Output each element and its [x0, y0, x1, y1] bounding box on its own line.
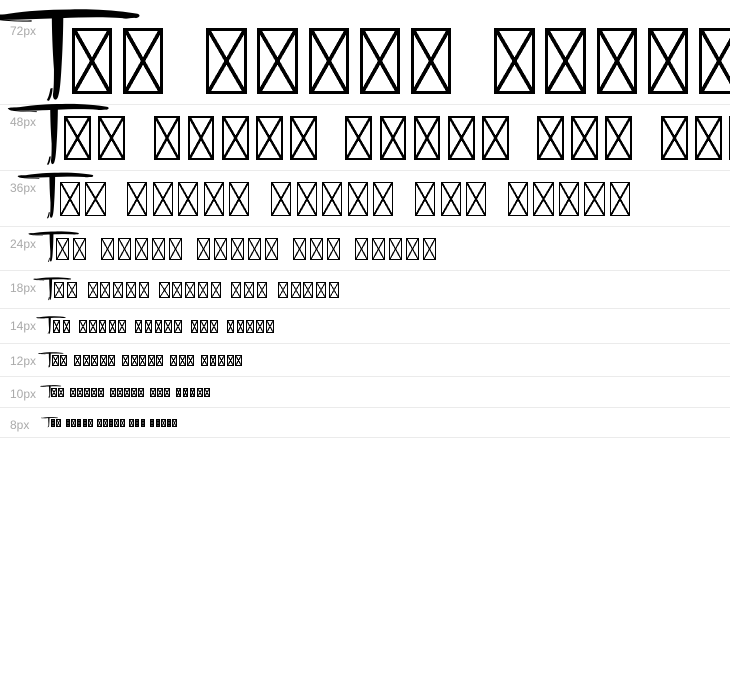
notdef-glyph-box: [348, 182, 368, 215]
notdef-glyph-box: [167, 419, 171, 426]
notdef-glyph-box: [571, 116, 598, 160]
preview-row-12px: 12px: [0, 344, 730, 377]
word-space: [270, 282, 278, 284]
notdef-glyph-box: [197, 388, 203, 397]
brush-t-glyph: [48, 282, 51, 299]
notdef-glyph-box: [100, 282, 110, 299]
notdef-glyph-box: [110, 388, 116, 397]
notdef-glyph-box: [157, 388, 163, 397]
notdef-glyph-box: [77, 388, 83, 397]
notdef-glyph-box: [661, 116, 688, 160]
font-size-label: 12px: [10, 355, 36, 368]
notdef-glyph-box: [122, 355, 129, 366]
preview-row-10px: 10px: [0, 377, 730, 408]
preview-line: [48, 382, 211, 393]
notdef-glyph-box: [117, 388, 123, 397]
notdef-glyph-box: [197, 238, 210, 260]
notdef-glyph-box: [74, 355, 81, 366]
notdef-glyph-box: [266, 320, 274, 333]
notdef-glyph-box: [172, 282, 182, 299]
brush-t-glyph: [48, 388, 50, 397]
notdef-glyph-box: [494, 28, 534, 94]
notdef-glyph-box: [355, 238, 368, 260]
notdef-glyph-box: [191, 320, 199, 333]
notdef-glyph-box: [152, 238, 165, 260]
notdef-glyph-box: [559, 182, 579, 215]
notdef-glyph-box: [204, 388, 210, 397]
notdef-glyph-box: [141, 419, 145, 426]
notdef-glyph-box: [508, 182, 528, 215]
notdef-glyph-box: [101, 238, 114, 260]
notdef-glyph-box: [200, 320, 208, 333]
notdef-glyph-box: [150, 419, 154, 426]
brush-t-icon: [41, 417, 59, 428]
notdef-glyph-box: [441, 182, 461, 215]
preview-line: [48, 312, 276, 328]
font-size-label: 10px: [10, 388, 36, 401]
notdef-glyph-box: [70, 388, 76, 397]
preview-row-14px: 14px: [0, 309, 730, 344]
notdef-glyph-box: [406, 238, 419, 260]
notdef-glyph-box: [139, 282, 149, 299]
notdef-glyph-box: [83, 419, 87, 426]
notdef-glyph-box: [210, 320, 218, 333]
notdef-glyph-box: [244, 282, 254, 299]
notdef-glyph-box: [210, 355, 217, 366]
notdef-glyph-box: [127, 182, 147, 215]
notdef-glyph-box: [248, 238, 261, 260]
word-space: [132, 116, 154, 121]
word-space: [324, 116, 346, 121]
notdef-glyph-box: [584, 182, 604, 215]
notdef-glyph-box: [185, 282, 195, 299]
notdef-glyph-box: [597, 28, 637, 94]
notdef-glyph-box: [256, 320, 264, 333]
notdef-glyph-box: [126, 282, 136, 299]
notdef-glyph-box: [89, 320, 97, 333]
notdef-glyph-box: [139, 355, 146, 366]
notdef-glyph-box: [100, 355, 107, 366]
brush-t-glyph: [48, 355, 50, 366]
notdef-glyph-box: [150, 388, 156, 397]
notdef-glyph-box: [235, 355, 242, 366]
brush-t-icon: [33, 277, 73, 301]
notdef-glyph-box: [257, 282, 267, 299]
notdef-glyph-box: [372, 238, 385, 260]
notdef-glyph-box: [414, 116, 441, 160]
notdef-glyph-box: [278, 282, 288, 299]
notdef-glyph-box: [84, 388, 90, 397]
notdef-glyph-box: [229, 182, 249, 215]
notdef-glyph-box: [201, 355, 208, 366]
notdef-glyph-box: [329, 282, 339, 299]
notdef-glyph-box: [88, 282, 98, 299]
brush-t-icon: [7, 103, 113, 168]
notdef-glyph-box: [174, 320, 182, 333]
brush-t-glyph: [48, 419, 49, 426]
word-space: [282, 238, 293, 240]
notdef-glyph-box: [159, 282, 169, 299]
preview-row-24px: 24px: [0, 227, 730, 271]
notdef-glyph-box: [423, 238, 436, 260]
notdef-glyph-box: [113, 282, 123, 299]
brush-t-glyph: [48, 320, 51, 333]
brush-t-glyph: [48, 238, 52, 260]
preview-line: [48, 348, 244, 362]
notdef-glyph-box: [169, 238, 182, 260]
notdef-glyph-box: [109, 419, 113, 426]
notdef-glyph-box: [131, 388, 137, 397]
preview-line: [48, 272, 342, 292]
notdef-glyph-box: [120, 419, 124, 426]
notdef-glyph-box: [290, 116, 317, 160]
preview-line: [48, 224, 440, 251]
notdef-glyph-box: [98, 388, 104, 397]
notdef-glyph-box: [533, 182, 553, 215]
notdef-glyph-box: [218, 355, 225, 366]
word-space: [640, 116, 662, 121]
notdef-glyph-box: [79, 320, 87, 333]
word-space: [151, 282, 159, 284]
brush-t-glyph: [48, 182, 54, 215]
preview-row-8px: 8px: [0, 408, 730, 437]
notdef-glyph-box: [309, 28, 349, 94]
notdef-glyph-box: [91, 388, 97, 397]
notdef-glyph-box: [148, 355, 155, 366]
notdef-glyph-box: [316, 282, 326, 299]
notdef-glyph-box: [187, 355, 194, 366]
word-space: [492, 182, 508, 186]
notdef-glyph-box: [183, 388, 189, 397]
notdef-glyph-box: [153, 182, 173, 215]
word-space: [344, 238, 355, 240]
notdef-glyph-box: [482, 116, 509, 160]
word-space: [516, 116, 538, 121]
notdef-glyph-box: [88, 419, 92, 426]
notdef-glyph-box: [71, 419, 75, 426]
notdef-glyph-box: [164, 320, 172, 333]
notdef-glyph-box: [178, 182, 198, 215]
notdef-glyph-box: [227, 355, 234, 366]
notdef-glyph-box: [198, 282, 208, 299]
preview-line: [48, 89, 730, 142]
word-space: [462, 28, 494, 35]
brush-t-icon: [40, 385, 62, 399]
font-size-label: 14px: [10, 320, 36, 333]
notdef-glyph-box: [124, 388, 130, 397]
notdef-glyph-box: [380, 116, 407, 160]
notdef-glyph-box: [389, 238, 402, 260]
preview-line: [48, 0, 730, 68]
notdef-glyph-box: [411, 28, 451, 94]
notdef-glyph-box: [109, 320, 117, 333]
notdef-glyph-box: [156, 419, 160, 426]
brush-t-icon: [17, 172, 96, 221]
notdef-glyph-box: [99, 320, 107, 333]
notdef-glyph-box: [131, 355, 138, 366]
notdef-glyph-box: [155, 320, 163, 333]
notdef-glyph-box: [415, 182, 435, 215]
notdef-glyph-box: [605, 116, 632, 160]
font-test-page: { "page": { "background_color": "#ffffff…: [0, 0, 730, 700]
notdef-glyph-box: [246, 320, 254, 333]
notdef-glyph-box: [231, 282, 241, 299]
notdef-glyph-box: [222, 116, 249, 160]
preview-row-36px: 36px: [0, 171, 730, 226]
notdef-glyph-box: [214, 238, 227, 260]
notdef-glyph-box: [448, 116, 475, 160]
notdef-glyph-box: [265, 238, 278, 260]
word-space: [223, 282, 231, 284]
notdef-glyph-box: [83, 355, 90, 366]
notdef-glyph-box: [188, 116, 215, 160]
word-space: [174, 28, 206, 35]
notdef-glyph-box: [97, 419, 101, 426]
notdef-glyph-box: [176, 388, 182, 397]
notdef-glyph-box: [156, 355, 163, 366]
notdef-glyph-box: [179, 355, 186, 366]
font-preview-waterfall: 72px 48px 36px 24px 18px 14px 12px 10px …: [0, 0, 730, 438]
notdef-glyph-box: [170, 355, 177, 366]
notdef-glyph-box: [227, 320, 235, 333]
notdef-glyph-box: [310, 238, 323, 260]
notdef-glyph-box: [648, 28, 688, 94]
brush-t-glyph: [48, 28, 61, 94]
notdef-glyph-box: [545, 28, 585, 94]
notdef-glyph-box: [293, 238, 306, 260]
word-space: [111, 182, 127, 186]
notdef-glyph-box: [66, 419, 70, 426]
notdef-glyph-box: [91, 355, 98, 366]
notdef-glyph-box: [327, 238, 340, 260]
notdef-glyph-box: [135, 320, 143, 333]
notdef-glyph-box: [138, 388, 144, 397]
notdef-glyph-box: [271, 182, 291, 215]
notdef-glyph-box: [231, 238, 244, 260]
notdef-glyph-box: [695, 116, 722, 160]
notdef-glyph-box: [135, 238, 148, 260]
notdef-glyph-box: [204, 182, 224, 215]
notdef-glyph-box: [373, 182, 393, 215]
notdef-glyph-box: [466, 182, 486, 215]
notdef-glyph-box: [145, 320, 153, 333]
brush-t-glyph: [48, 116, 57, 160]
notdef-glyph-box: [303, 282, 313, 299]
notdef-glyph-box: [154, 116, 181, 160]
notdef-glyph-box: [237, 320, 245, 333]
notdef-glyph-box: [297, 182, 317, 215]
notdef-glyph-box: [190, 388, 196, 397]
notdef-glyph-box: [610, 182, 630, 215]
word-space: [90, 238, 101, 240]
notdef-glyph-box: [291, 282, 301, 299]
notdef-glyph-box: [118, 320, 126, 333]
word-space: [79, 282, 87, 284]
notdef-glyph-box: [699, 28, 730, 94]
notdef-glyph-box: [118, 238, 131, 260]
word-space: [255, 182, 271, 186]
notdef-glyph-box: [256, 116, 283, 160]
word-space: [399, 182, 415, 186]
notdef-glyph-box: [103, 419, 107, 426]
preview-line: [48, 414, 178, 423]
notdef-glyph-box: [108, 355, 115, 366]
notdef-glyph-box: [322, 182, 342, 215]
notdef-glyph-box: [257, 28, 297, 94]
brush-t-icon: [38, 352, 64, 368]
notdef-glyph-box: [211, 282, 221, 299]
notdef-glyph-box: [360, 28, 400, 94]
brush-t-icon: [0, 8, 145, 105]
word-space: [186, 238, 197, 240]
notdef-glyph-box: [161, 419, 165, 426]
preview-row-18px: 18px: [0, 271, 730, 310]
notdef-glyph-box: [172, 419, 176, 426]
notdef-glyph-box: [345, 116, 372, 160]
preview-line: [48, 161, 636, 202]
notdef-glyph-box: [114, 419, 118, 426]
notdef-glyph-box: [129, 419, 133, 426]
brush-t-icon: [36, 316, 67, 335]
notdef-glyph-box: [135, 419, 139, 426]
notdef-glyph-box: [77, 419, 81, 426]
font-size-label: 8px: [10, 419, 29, 432]
notdef-glyph-box: [537, 116, 564, 160]
notdef-glyph-box: [164, 388, 170, 397]
brush-t-icon: [28, 231, 81, 263]
notdef-glyph-box: [206, 28, 246, 94]
